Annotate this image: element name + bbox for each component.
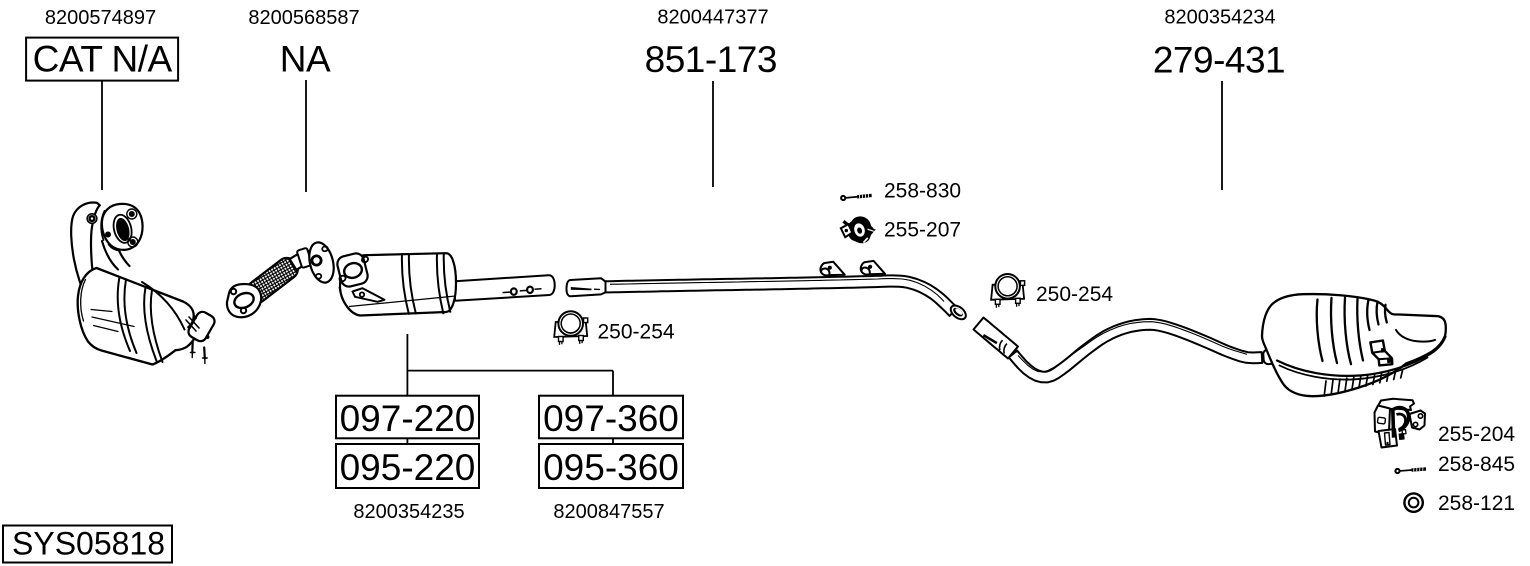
svg-text:255-204: 255-204 bbox=[1438, 423, 1515, 446]
svg-text:CAT N/A: CAT N/A bbox=[33, 39, 173, 80]
svg-text:8200354235: 8200354235 bbox=[353, 501, 464, 523]
svg-text:8200447377: 8200447377 bbox=[657, 7, 768, 29]
svg-text:8200574897: 8200574897 bbox=[45, 7, 156, 29]
svg-text:255-207: 255-207 bbox=[884, 219, 961, 242]
svg-text:095-220: 095-220 bbox=[340, 447, 476, 488]
svg-text:097-360: 097-360 bbox=[543, 398, 679, 439]
svg-text:250-254: 250-254 bbox=[1036, 283, 1113, 306]
svg-text:8200847557: 8200847557 bbox=[553, 501, 664, 523]
svg-text:258-830: 258-830 bbox=[884, 180, 961, 203]
svg-text:097-220: 097-220 bbox=[340, 398, 476, 439]
svg-text:851-173: 851-173 bbox=[645, 39, 777, 80]
svg-text:279-431: 279-431 bbox=[1153, 40, 1285, 81]
svg-text:NA: NA bbox=[280, 39, 331, 80]
svg-text:SYS05818: SYS05818 bbox=[12, 526, 165, 562]
svg-text:095-360: 095-360 bbox=[543, 447, 679, 488]
svg-text:258-121: 258-121 bbox=[1438, 492, 1515, 515]
svg-text:250-254: 250-254 bbox=[598, 321, 675, 344]
svg-text:8200568587: 8200568587 bbox=[248, 7, 359, 29]
svg-text:8200354234: 8200354234 bbox=[1164, 7, 1275, 29]
svg-text:258-845: 258-845 bbox=[1438, 453, 1515, 476]
